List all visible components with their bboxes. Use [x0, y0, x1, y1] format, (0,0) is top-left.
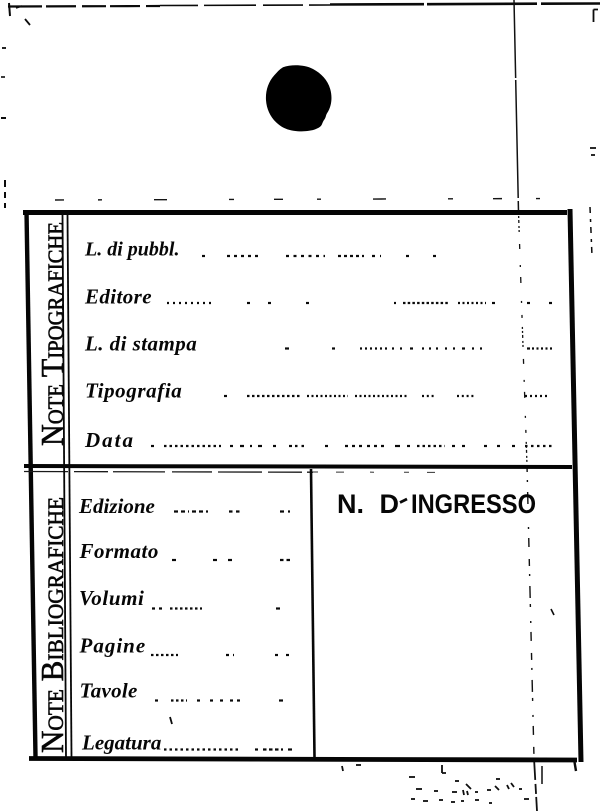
svg-text:Edizione: Edizione: [78, 494, 155, 518]
svg-text:INGRESSO: INGRESSO: [411, 489, 536, 519]
svg-text:Note Tipografiche: Note Tipografiche: [34, 222, 70, 446]
svg-text:Tipografia: Tipografia: [85, 379, 182, 403]
svg-text:Note Bibliografiche: Note Bibliografiche: [34, 497, 70, 753]
svg-text:L. di pubbl.: L. di pubbl.: [84, 239, 179, 261]
svg-text:Volumi: Volumi: [79, 586, 144, 610]
svg-text:D: D: [380, 489, 400, 519]
svg-text:Pagine: Pagine: [79, 634, 147, 658]
svg-text:Formato: Formato: [79, 539, 159, 563]
svg-text:Legatura: Legatura: [81, 731, 161, 755]
svg-text:Editore: Editore: [84, 285, 152, 309]
svg-text:N.: N.: [337, 489, 364, 519]
svg-text:Data: Data: [84, 428, 135, 452]
svg-text:Tavole: Tavole: [80, 679, 138, 703]
svg-text:L. di stampa: L. di stampa: [84, 332, 197, 356]
